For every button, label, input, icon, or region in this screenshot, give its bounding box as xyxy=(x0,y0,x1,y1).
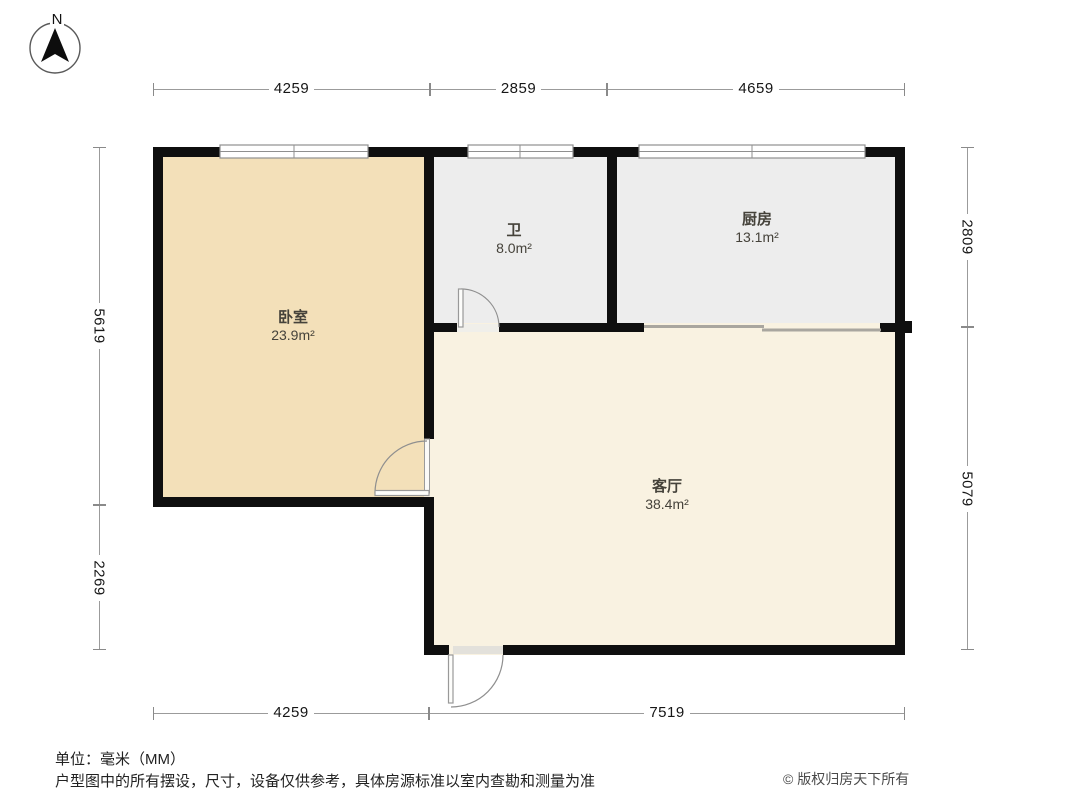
dim-value: 5079 xyxy=(959,471,976,506)
wall-left xyxy=(153,147,163,507)
floorplan-drawing xyxy=(0,0,1066,800)
room-area-bathroom: 8.0m² xyxy=(452,240,576,256)
dim-left-2: 2269 xyxy=(92,505,106,650)
room-label-kitchen: 厨房 13.1m² xyxy=(695,211,819,245)
room-name-bedroom: 卧室 xyxy=(231,309,355,326)
bedroom-door-leaf xyxy=(375,491,429,496)
wall-right xyxy=(895,147,905,655)
kitchen-window xyxy=(639,145,865,158)
dim-top-1: 4259 xyxy=(153,82,430,96)
dim-value: 7519 xyxy=(644,706,689,720)
wall-bathroom-bottom-left xyxy=(434,323,457,332)
dim-value: 4259 xyxy=(269,82,314,96)
dim-top-3: 4659 xyxy=(607,82,905,96)
entry-door-threshold xyxy=(453,646,503,654)
room-area-kitchen: 13.1m² xyxy=(695,229,819,245)
compass-north-label: N xyxy=(28,12,86,27)
dim-value: 2269 xyxy=(91,560,108,595)
dim-value: 2859 xyxy=(496,82,541,96)
bedroom-window xyxy=(220,145,368,158)
wall-bedroom-right xyxy=(424,157,434,439)
footer-copyright: © 版权归房天下所有 xyxy=(783,769,909,789)
room-area-living: 38.4m² xyxy=(605,496,729,512)
dim-right-2: 5079 xyxy=(960,327,974,650)
entry-door xyxy=(449,646,504,707)
room-label-bathroom: 卫 8.0m² xyxy=(452,222,576,256)
room-label-living: 客厅 38.4m² xyxy=(605,478,729,512)
bedroom-door-frame xyxy=(425,439,430,493)
bathroom-window xyxy=(468,145,573,158)
dim-bottom-2: 7519 xyxy=(429,706,905,720)
dim-value: 4259 xyxy=(268,706,313,720)
footer-disclaimer: 户型图中的所有摆设，尺寸，设备仅供参考，具体房源标准以室内查勘和测量为准 xyxy=(55,770,595,791)
floorplan-page: N xyxy=(0,0,1066,800)
footer-unit-note: 单位：毫米（MM） xyxy=(55,748,185,769)
bathroom-door-leaf xyxy=(459,289,464,327)
dim-right-1: 2809 xyxy=(960,147,974,327)
wall-bathroom-right xyxy=(607,157,617,332)
windows xyxy=(220,145,865,158)
dim-value: 5619 xyxy=(91,308,108,343)
wall-bottom-left xyxy=(424,645,449,655)
wall-bottom-right xyxy=(503,645,905,655)
entry-door-arc xyxy=(451,655,503,707)
room-name-bathroom: 卫 xyxy=(452,222,576,239)
dim-value: 4659 xyxy=(733,82,778,96)
dim-bottom-1: 4259 xyxy=(153,706,429,720)
dim-top-2: 2859 xyxy=(430,82,607,96)
room-label-bedroom: 卧室 23.9m² xyxy=(231,309,355,343)
room-name-living: 客厅 xyxy=(605,478,729,495)
wall-right-outer-stub xyxy=(905,321,912,333)
dim-value: 2809 xyxy=(959,219,976,254)
entry-door-leaf xyxy=(449,655,454,703)
room-area-bedroom: 23.9m² xyxy=(231,327,355,343)
wall-bathroom-bottom-right xyxy=(499,323,644,332)
room-name-kitchen: 厨房 xyxy=(695,211,819,228)
wall-kitchen-bottom-stub xyxy=(880,323,895,332)
dim-left-1: 5619 xyxy=(92,147,106,505)
wall-bedroom-bottom xyxy=(153,497,434,507)
wall-living-left xyxy=(424,497,434,655)
